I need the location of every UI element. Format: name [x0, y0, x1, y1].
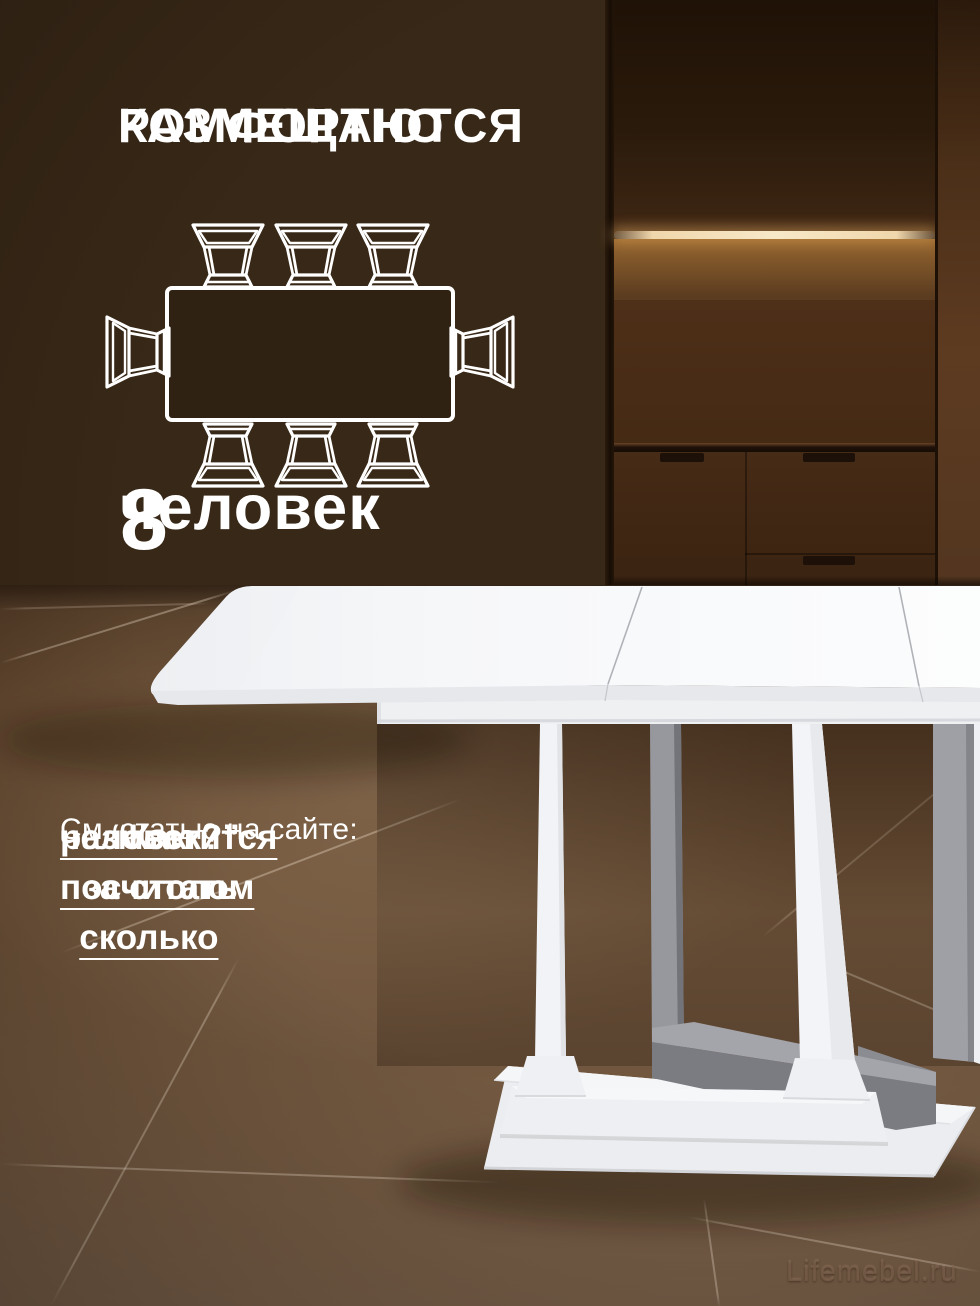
drawer-handle [803, 556, 855, 565]
wall-floor-shadow [0, 585, 980, 611]
lower-cabinet [614, 452, 935, 586]
tile-grout-line [703, 1198, 720, 1306]
under-cabinet-light [614, 231, 935, 239]
tile-grout-line [761, 755, 980, 938]
product-marketing-image: КОМФОРТНО РАЗМЕЩАЮТСЯ 8 человек См. стат… [0, 0, 980, 1306]
drawer-handle [803, 453, 855, 462]
drawer-seam [745, 553, 935, 555]
watermark: Lifemebel.ru [786, 1256, 958, 1289]
tile-grout-line [794, 950, 980, 1031]
backsplash-wall [614, 300, 935, 444]
capacity-unit: человек [120, 477, 381, 540]
tile-grout-line [0, 1163, 500, 1183]
drawer-handle [660, 453, 704, 462]
countertop [614, 443, 935, 452]
cabinet-edge [605, 0, 614, 586]
article-link-line3[interactable]: человек?” [60, 813, 240, 863]
upper-cabinet [614, 0, 935, 234]
headline-line2: РАЗМЕЩАЮТСЯ [118, 100, 524, 153]
cabinet-door-seam [745, 452, 747, 586]
tile-grout-line [50, 957, 240, 1305]
cabinet-side-panel [935, 0, 980, 586]
